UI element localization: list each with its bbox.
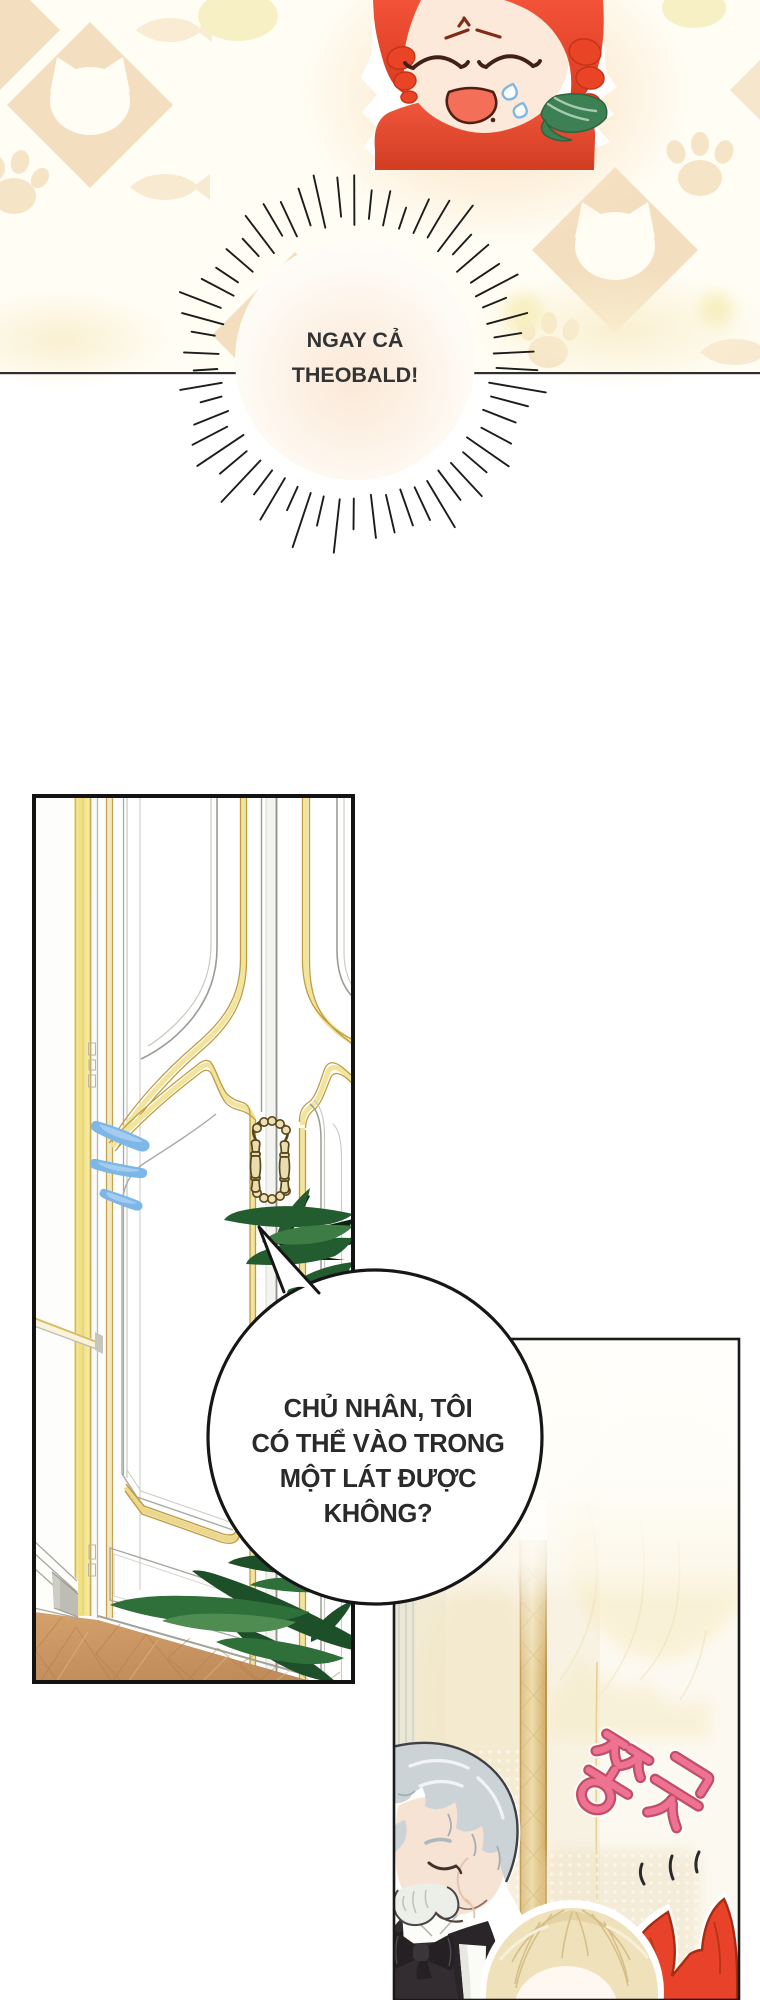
svg-text:CHỦ NHÂN, TÔI: CHỦ NHÂN, TÔI: [284, 1393, 473, 1423]
svg-text:THEOBALD!: THEOBALD!: [292, 363, 419, 387]
svg-text:CÓ THỂ VÀO TRONG: CÓ THỂ VÀO TRONG: [251, 1428, 504, 1458]
svg-text:NGAY CẢ: NGAY CẢ: [307, 327, 404, 352]
svg-text:MỘT LÁT ĐƯỢC: MỘT LÁT ĐƯỢC: [280, 1463, 477, 1493]
svg-text:KHÔNG?: KHÔNG?: [324, 1498, 433, 1528]
